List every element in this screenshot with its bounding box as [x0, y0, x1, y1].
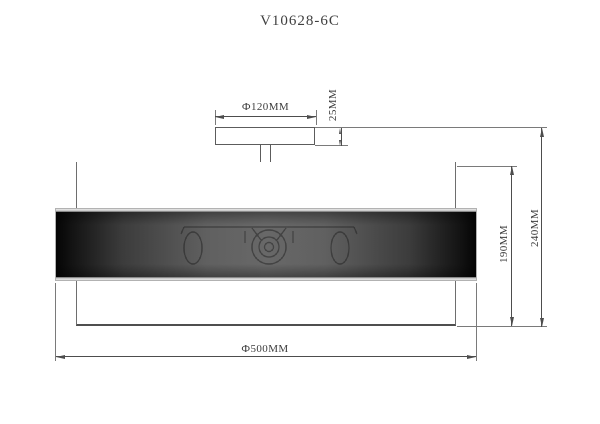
dim-canopy-diameter-label: Ф120MM	[215, 101, 316, 113]
dim-shade-height-label: 190MM	[498, 225, 510, 263]
dim-shade-height-line	[511, 166, 512, 326]
socket-silhouette-mid	[259, 237, 279, 257]
canopy-outline	[215, 127, 315, 145]
mesh-top-rim	[56, 209, 476, 212]
extension-line-mesh-left	[55, 283, 56, 361]
bulb-silhouette-right	[331, 232, 349, 264]
dim-arrow-left-icon	[56, 355, 65, 359]
extension-line-bottom-shared	[457, 326, 547, 327]
extension-line-mesh-right	[476, 283, 477, 361]
mesh-bottom-rim	[56, 277, 476, 280]
dim-shade-diameter-line	[56, 356, 476, 357]
dim-arrow-right-icon	[467, 355, 476, 359]
socket-silhouette-inner	[265, 243, 274, 252]
dim-canopy-diameter-line	[215, 116, 316, 117]
mesh-band	[55, 208, 477, 281]
dim-arrow-down-icon	[540, 318, 544, 327]
dim-shade-diameter-label: Ф500MM	[215, 343, 315, 355]
socket-silhouette-outer	[252, 230, 286, 264]
extension-line-shade-top	[457, 166, 517, 167]
canopy-stem	[260, 145, 271, 163]
page-title: V10628-6C	[0, 13, 600, 30]
dim-canopy-height-label: 25MM	[327, 89, 339, 121]
dim-arrow-down-icon	[339, 140, 341, 146]
bulb-silhouette-left	[184, 232, 202, 264]
drawing-canvas: V10628-6C Ф120MM	[0, 0, 600, 424]
extension-line-top-long	[315, 127, 547, 128]
dim-arrow-left-icon	[215, 115, 224, 119]
inner-lamp-silhouette	[56, 212, 478, 277]
dim-arrow-up-icon	[339, 128, 341, 134]
dim-arrow-up-icon	[540, 128, 544, 137]
dim-overall-height-line	[541, 128, 542, 327]
dim-arrow-down-icon	[510, 317, 514, 326]
extension-line-canopy-bottom	[315, 145, 348, 146]
dim-arrow-right-icon	[307, 115, 316, 119]
dim-overall-height-label: 240MM	[529, 209, 541, 247]
dim-arrow-up-icon	[510, 166, 514, 175]
